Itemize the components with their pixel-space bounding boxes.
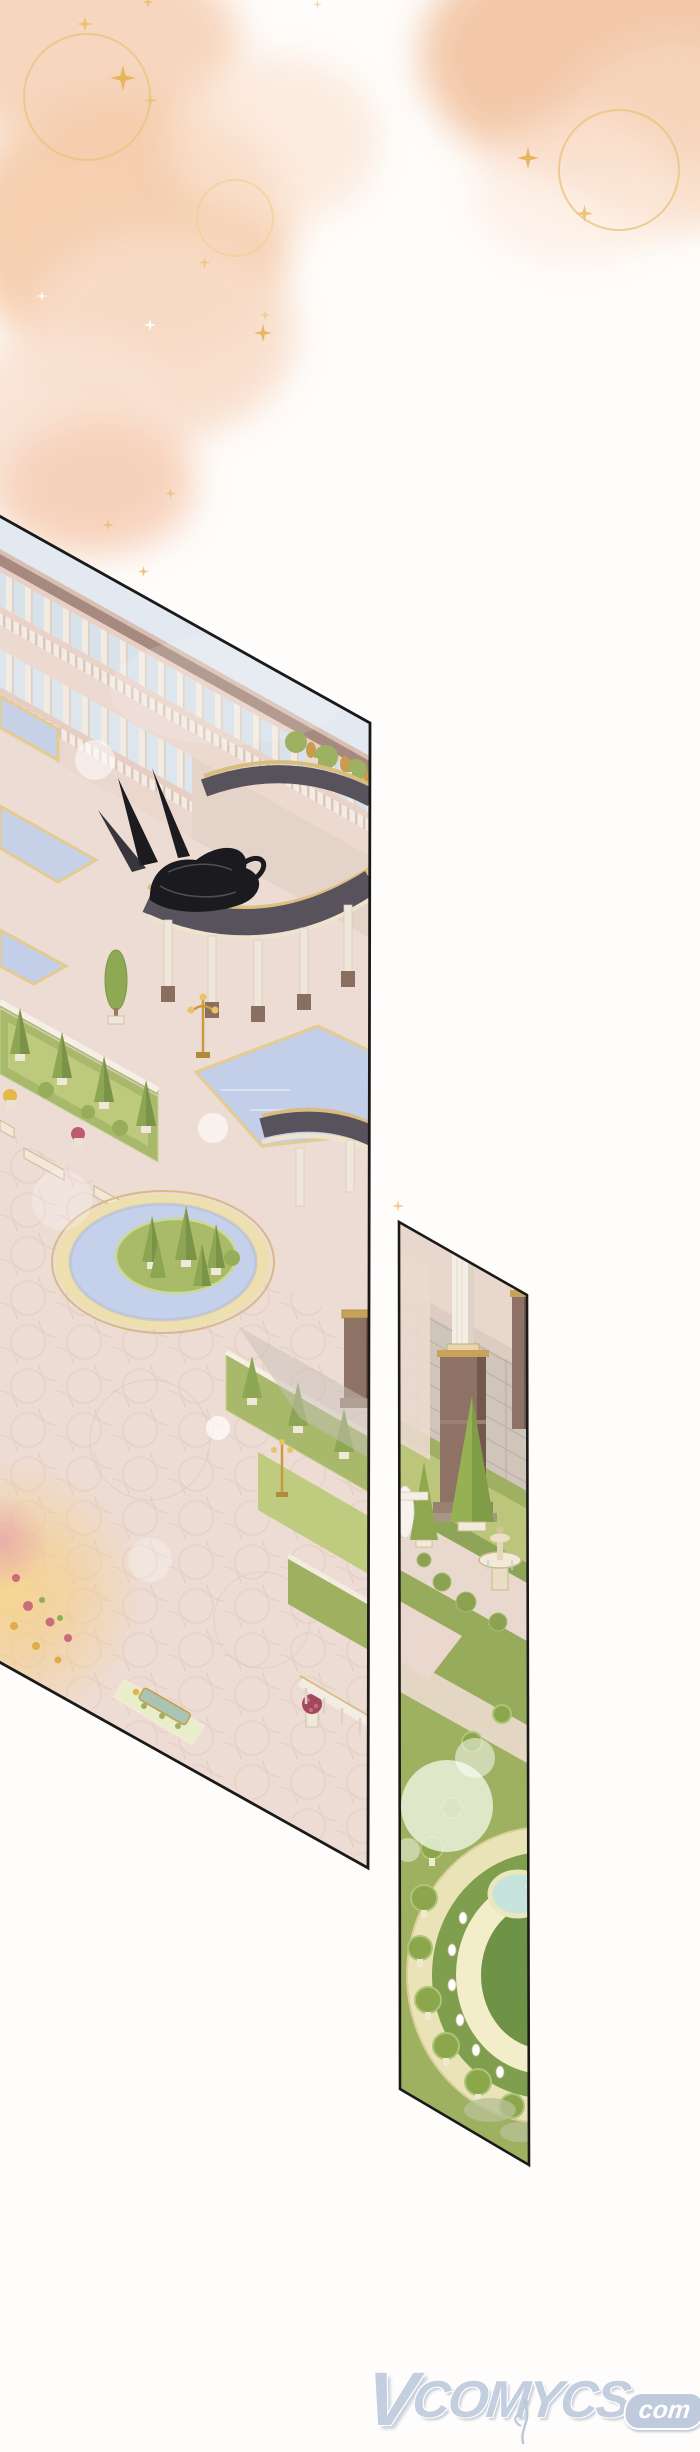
site-watermark: VCOMYCScom: [361, 2348, 700, 2452]
sparkle-icon: [392, 1200, 404, 1212]
gold-ring: [196, 179, 274, 257]
sparkle-icon: [313, 0, 322, 9]
panel-garden-wide: [0, 510, 376, 1874]
webtoon-page: { "page": { "kind": "webtoon comic page"…: [0, 0, 700, 2452]
watermark-domain-badge: com: [622, 2392, 700, 2430]
side-path: [398, 1250, 430, 1460]
light-haze: [110, 635, 350, 745]
light-flare: [455, 1738, 495, 1778]
watermark-initial: V: [362, 2357, 418, 2442]
panel-garden-strip: [396, 1216, 534, 2172]
right-pillar: [510, 1238, 532, 1429]
gold-ring: [558, 109, 680, 231]
gold-ring: [23, 33, 151, 161]
flower-doodle-icon: [503, 2394, 548, 2446]
